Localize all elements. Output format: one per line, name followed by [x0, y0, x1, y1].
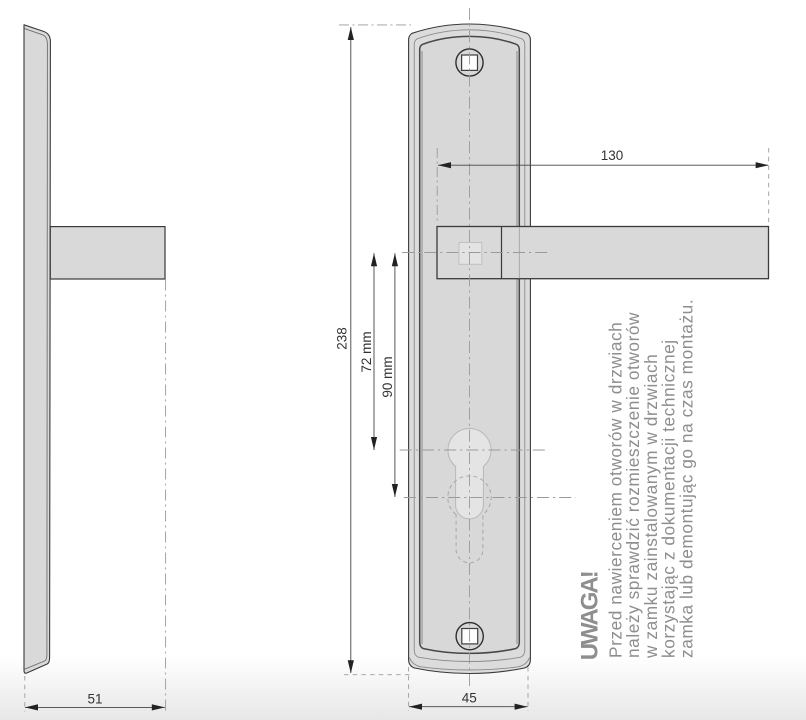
svg-text:UWAGA!: UWAGA!	[577, 572, 604, 660]
svg-text:51: 51	[87, 692, 102, 707]
svg-text:72 mm: 72 mm	[359, 331, 374, 372]
svg-text:238: 238	[335, 327, 350, 350]
svg-text:90 mm: 90 mm	[380, 356, 395, 397]
svg-text:45: 45	[462, 691, 477, 706]
svg-text:zamka lub demontując go na cza: zamka lub demontując go na czas montażu.	[676, 299, 696, 658]
svg-text:130: 130	[601, 148, 624, 163]
